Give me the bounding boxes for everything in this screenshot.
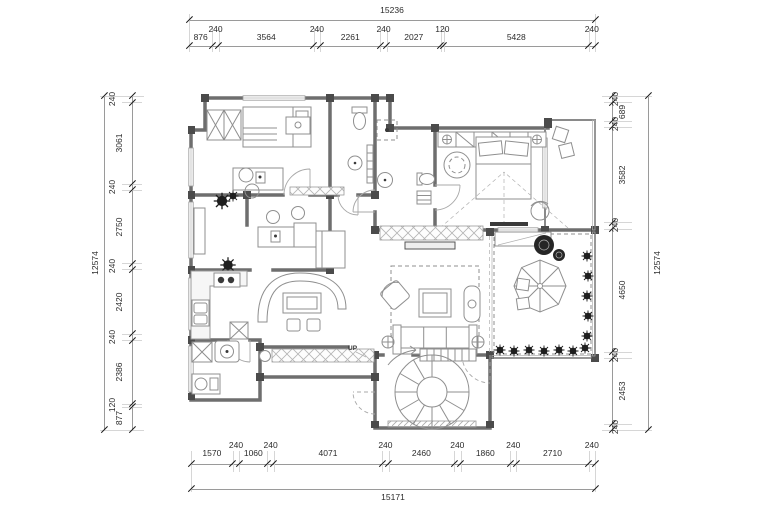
dimension-value: 240 [610, 348, 620, 362]
dimension-value: 3582 [617, 165, 627, 184]
dimension-value: 120 [435, 24, 449, 34]
kitchen [191, 271, 248, 339]
dimension-value: 2460 [412, 448, 431, 458]
dimension-total-line [104, 96, 105, 430]
dimension-value: 240 [208, 24, 222, 34]
master-bedroom [438, 132, 568, 228]
dimension-line [189, 46, 595, 47]
dimension-value: 240 [450, 440, 464, 450]
kids-bedroom [207, 107, 344, 198]
dimension-total-line [189, 20, 595, 21]
dimension-value: 3564 [257, 32, 276, 42]
dimension-value: 4071 [319, 448, 338, 458]
dimension-value: 240 [376, 24, 390, 34]
dimension-value: 1860 [476, 448, 495, 458]
dimension-value: 2420 [114, 292, 124, 311]
dimension-value: 5428 [507, 32, 526, 42]
dimension-line [191, 464, 595, 465]
hallway [194, 191, 239, 273]
floor-plan-drawing [188, 90, 608, 440]
dimension-value: 240 [107, 259, 117, 273]
living-room [379, 226, 484, 354]
dimension-value: 876 [194, 32, 208, 42]
balcony [552, 126, 574, 158]
floor-plan-canvas: 876240356424022612402027120542824015236 … [0, 0, 780, 520]
dimension-value: 240 [310, 24, 324, 34]
dimension-value: 877 [114, 411, 124, 425]
terrace [494, 232, 594, 357]
dimension-total-line [191, 489, 595, 490]
dimension-value: 1570 [202, 448, 221, 458]
dimension-value: 240 [107, 180, 117, 194]
dimension-value: 1060 [244, 448, 263, 458]
corridor [260, 349, 477, 362]
study [258, 207, 345, 269]
dimension-value: 2386 [114, 362, 124, 381]
dimension-total: 12574 [90, 251, 100, 275]
dimension-value: 240 [610, 218, 620, 232]
extension-line [100, 430, 144, 431]
dimension-value: 3061 [114, 134, 124, 153]
dimension-value: 240 [107, 330, 117, 344]
bathroom [348, 107, 373, 183]
dimension-value: 240 [107, 92, 117, 106]
dimension-value: 2710 [543, 448, 562, 458]
dimension-value: 240 [506, 440, 520, 450]
dimension-value: 240 [378, 440, 392, 450]
dimension-value: 240 [264, 440, 278, 450]
dimension-value: 240 [610, 117, 620, 131]
master-bathroom [377, 120, 435, 204]
dimension-total: 12574 [652, 251, 662, 275]
dimension-value: 240 [229, 440, 243, 450]
dimension-value: 240 [610, 420, 620, 434]
dimension-total-line [648, 96, 649, 430]
dimension-total: 15236 [380, 5, 404, 15]
utility-room [192, 341, 239, 394]
dimension-value: 4650 [617, 281, 627, 300]
dimension-value: 2453 [617, 382, 627, 401]
dimension-line [612, 96, 613, 430]
dimension-value: 240 [585, 24, 599, 34]
dining-area [258, 273, 346, 331]
stair-up-label: UP [348, 345, 357, 352]
dimension-value: 2261 [341, 32, 360, 42]
dimension-total: 15171 [381, 492, 405, 502]
dimension-value: 240 [585, 440, 599, 450]
dimension-value: 2750 [114, 217, 124, 236]
dimension-value: 2027 [404, 32, 423, 42]
